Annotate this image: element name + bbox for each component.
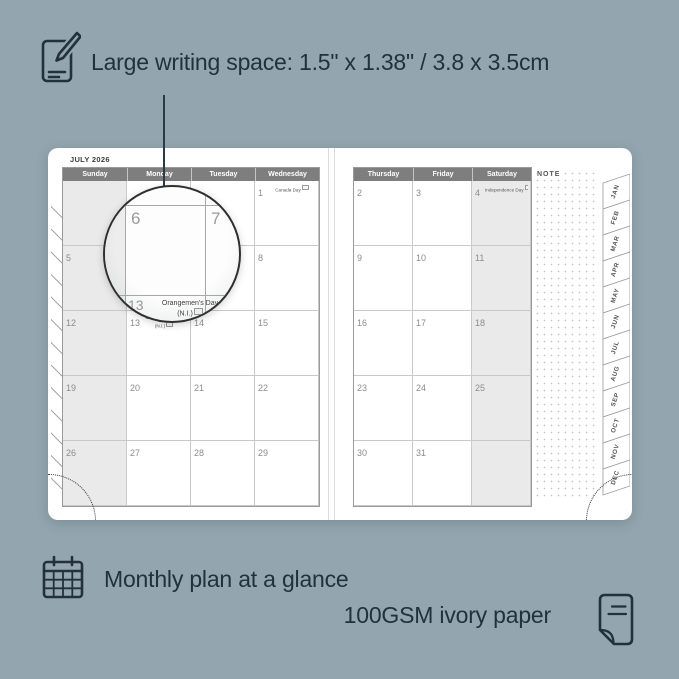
calendar-cell: 11 (472, 246, 531, 311)
paper-caption: 100GSM ivory paper (344, 602, 551, 629)
calendar-grid-right: ThursdayFridaySaturday234Independence Da… (353, 167, 532, 507)
day-header: Thursday (354, 168, 413, 181)
day-number: 26 (66, 448, 76, 458)
day-number: 9 (357, 253, 362, 263)
calendar-cell: 24 (413, 376, 472, 441)
holiday-badge-icon (302, 185, 309, 191)
day-number: 29 (258, 448, 268, 458)
calendar-cell: 28 (191, 441, 255, 506)
note-label: NOTE (537, 171, 562, 178)
page-edge-hatch (51, 200, 62, 500)
calendar-cell: 31 (413, 441, 472, 506)
paper-sheet-icon (597, 592, 635, 647)
day-number: 16 (357, 318, 367, 328)
day-header: Tuesday (191, 168, 255, 181)
calendar-cell: 8 (255, 246, 319, 311)
calendar-cell: 19 (63, 376, 127, 441)
month-tab-strip: JANFEBMARAPRMAYJUNJULAUGSEPOCTNOVDEC (599, 174, 630, 496)
holiday-badge-icon (525, 185, 528, 191)
day-number: 19 (66, 383, 76, 393)
leader-line (163, 95, 165, 188)
day-number: 21 (194, 383, 204, 393)
calendar-cell: 1Canada Day (255, 181, 319, 246)
day-number: 12 (66, 318, 76, 328)
calendar-grid-icon (40, 554, 86, 601)
holiday-label: Independence Day (485, 185, 528, 194)
day-number: 20 (130, 383, 140, 393)
holiday-label: Canada Day (268, 185, 316, 194)
calendar-cell: 21 (191, 376, 255, 441)
day-header: Monday (127, 168, 191, 181)
day-number: 3 (416, 188, 421, 198)
calendar-cell: 30 (354, 441, 413, 506)
calendar-cell: 10 (413, 246, 472, 311)
day-number: 10 (416, 253, 426, 263)
day-number: 31 (416, 448, 426, 458)
calendar-cell (472, 441, 531, 506)
calendar-cell: 15 (255, 311, 319, 376)
spine-line (328, 148, 329, 520)
calendar-cell: 4Independence Day (472, 181, 531, 246)
monthly-plan-caption: Monthly plan at a glance (104, 566, 349, 593)
calendar-cell: 2 (354, 181, 413, 246)
pencil-note-icon (39, 31, 81, 89)
day-number: 18 (475, 318, 485, 328)
day-number: 17 (416, 318, 426, 328)
month-title: JULY 2026 (70, 155, 110, 164)
calendar-cell: 29 (255, 441, 319, 506)
day-number: 27 (130, 448, 140, 458)
day-number: 25 (475, 383, 485, 393)
day-number: 2 (357, 188, 362, 198)
day-header: Friday (413, 168, 472, 181)
day-number: 14 (194, 318, 204, 328)
note-dot-grid (534, 170, 597, 500)
calendar-cell: 14 (191, 311, 255, 376)
calendar-cell: 27 (127, 441, 191, 506)
magnifier-circle: 6 7 13 Orangemen's Day (N.I.) (103, 185, 241, 323)
day-header: Wednesday (255, 168, 319, 181)
product-image: Large writing space: 1.5" x 1.38" / 3.8 … (0, 0, 679, 679)
day-header: Saturday (472, 168, 531, 181)
day-number: 5 (66, 253, 71, 263)
lens-gloss (105, 187, 239, 321)
calendar-cell: 25 (472, 376, 531, 441)
day-number: 13 (130, 318, 140, 328)
day-number: 1 (258, 188, 263, 198)
day-number: 24 (416, 383, 426, 393)
day-number: 30 (357, 448, 367, 458)
calendar-cell: 16 (354, 311, 413, 376)
calendar-cell: 20 (127, 376, 191, 441)
day-number: 4 (475, 188, 480, 198)
spine-line (334, 148, 335, 520)
day-number: 8 (258, 253, 263, 263)
day-number: 28 (194, 448, 204, 458)
calendar-cell: 17 (413, 311, 472, 376)
day-number: 15 (258, 318, 268, 328)
day-number: 11 (475, 253, 484, 263)
writing-space-caption: Large writing space: 1.5" x 1.38" / 3.8 … (91, 49, 549, 76)
calendar-cell: 3 (413, 181, 472, 246)
calendar-cell: 9 (354, 246, 413, 311)
calendar-cell: 22 (255, 376, 319, 441)
day-number: 23 (357, 383, 367, 393)
calendar-cell: 23 (354, 376, 413, 441)
calendar-cell: 18 (472, 311, 531, 376)
day-header: Sunday (63, 168, 127, 181)
day-number: 22 (258, 383, 268, 393)
